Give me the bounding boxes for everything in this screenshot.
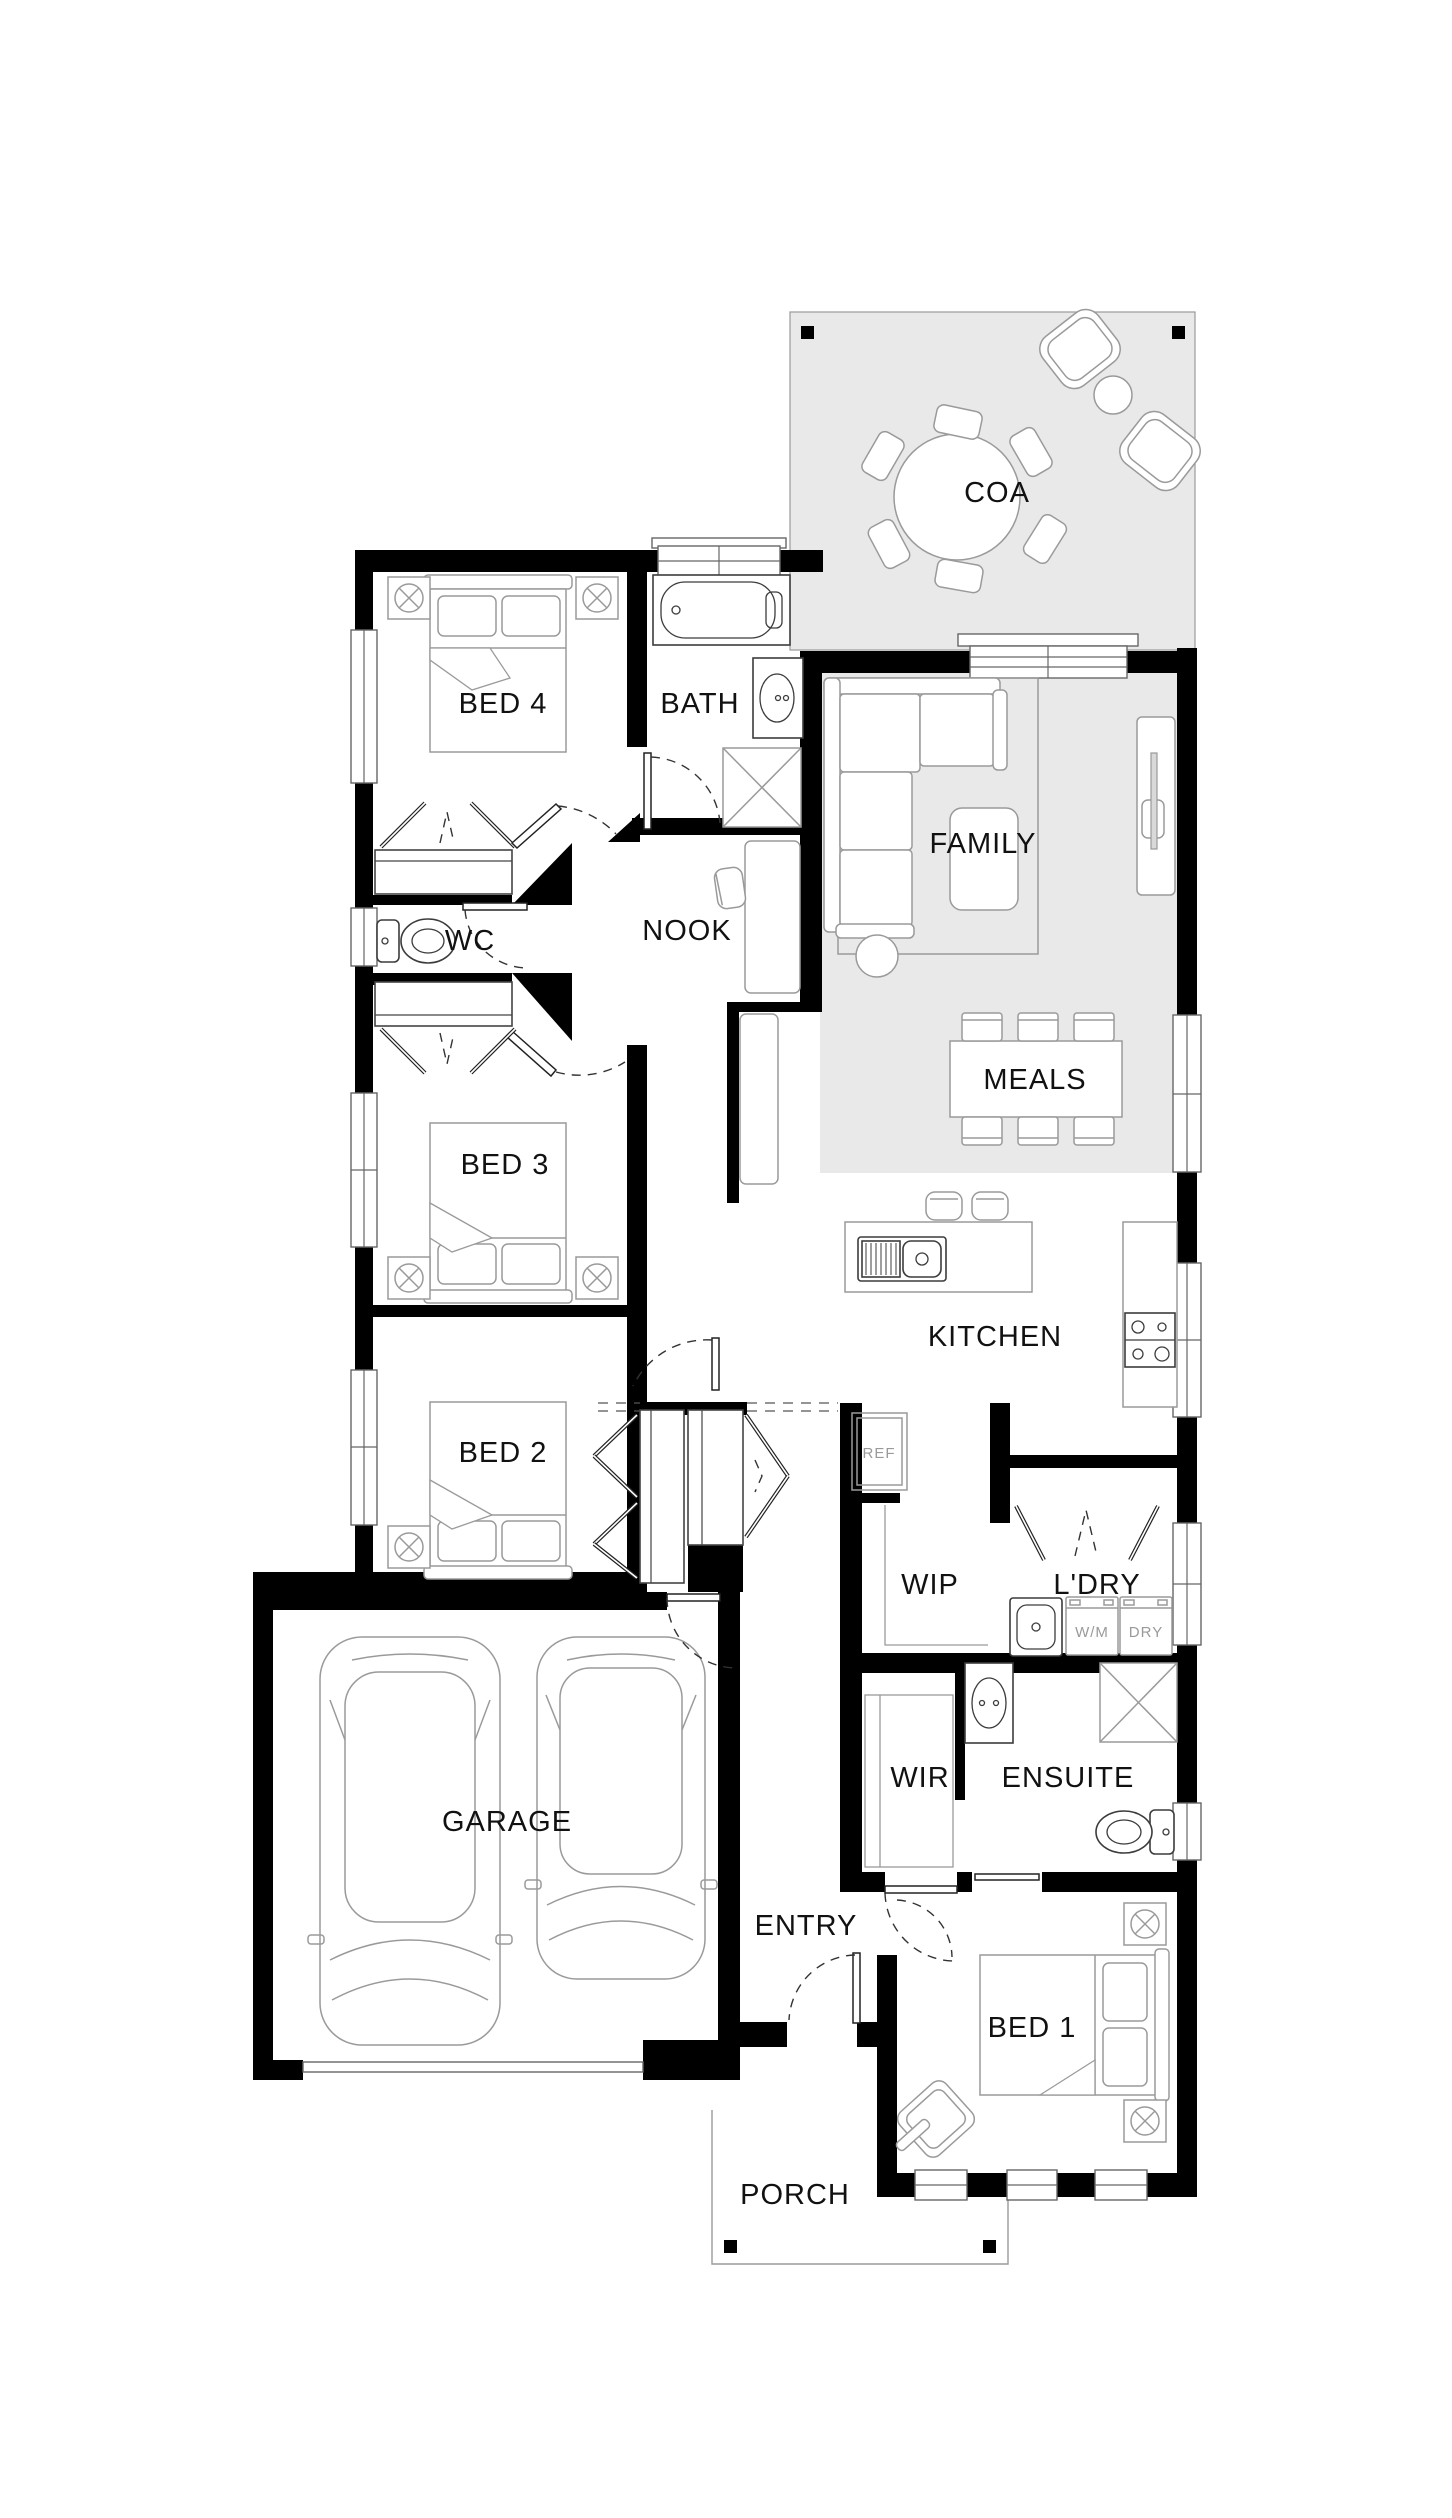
bed2-light bbox=[388, 1526, 430, 1568]
laundry-trough bbox=[1010, 1598, 1062, 1656]
bed2-furniture bbox=[388, 1402, 684, 1583]
bed2-window bbox=[351, 1370, 377, 1525]
kitchen-sink bbox=[858, 1237, 946, 1281]
ensuite-toilet bbox=[1096, 1810, 1174, 1854]
bed3-furniture bbox=[375, 982, 618, 1303]
floor-plan-page: COA BED 4 BATH FAMILY WC NOOK MEALS BED … bbox=[0, 0, 1452, 2518]
room-label-wc: WC bbox=[445, 925, 495, 957]
bath-window bbox=[652, 538, 786, 576]
meals-window bbox=[1173, 1015, 1201, 1172]
bed4-window bbox=[351, 630, 377, 783]
wc-toilet bbox=[377, 919, 455, 963]
meals-buffet bbox=[740, 1014, 778, 1184]
bed4-light bbox=[388, 577, 430, 619]
bed1-light bbox=[1124, 1903, 1166, 1945]
room-label-bed2: BED 2 bbox=[459, 1437, 548, 1469]
bed2-bed bbox=[424, 1402, 572, 1579]
bed3-light bbox=[388, 1257, 430, 1299]
linen-cupboard bbox=[688, 1410, 788, 1545]
bed4-light bbox=[576, 577, 618, 619]
family-tv-unit bbox=[1137, 717, 1175, 895]
kitchen-stools bbox=[926, 1192, 1008, 1220]
room-label-porch: PORCH bbox=[740, 2179, 850, 2211]
room-label-wip: WIP bbox=[901, 1569, 959, 1601]
ensuite-shower bbox=[1100, 1663, 1177, 1742]
laundry-window bbox=[1173, 1523, 1201, 1645]
nook-chair bbox=[713, 866, 746, 910]
bed1-light bbox=[1124, 2100, 1166, 2142]
bed3-window bbox=[351, 1093, 377, 1247]
bed1-chair bbox=[894, 2077, 979, 2162]
bed3-light bbox=[576, 1257, 618, 1299]
bed3-door bbox=[507, 1031, 625, 1076]
room-label-bed1: BED 1 bbox=[988, 2012, 1077, 2044]
ensuite-slider bbox=[975, 1874, 1039, 1880]
car-1 bbox=[308, 1637, 512, 2045]
room-label-nook: NOOK bbox=[642, 915, 731, 947]
porch-post bbox=[724, 2240, 737, 2253]
room-label-ensuite: ENSUITE bbox=[1002, 1762, 1135, 1794]
room-label-ldry: L'DRY bbox=[1053, 1569, 1140, 1601]
label-wm: W/M bbox=[1075, 1624, 1109, 1641]
bed4-furniture bbox=[375, 575, 618, 894]
room-label-bed4: BED 4 bbox=[459, 688, 548, 720]
kitchen-fixtures bbox=[845, 1192, 1177, 1407]
wir-ens-door bbox=[885, 1886, 957, 1961]
room-label-bath: BATH bbox=[660, 688, 739, 720]
bed1-door-swing bbox=[897, 1900, 952, 1957]
ensuite-vanity bbox=[965, 1663, 1013, 1743]
wc-window bbox=[351, 908, 377, 966]
laundry-bifolds bbox=[1016, 1506, 1158, 1560]
nook-desk bbox=[745, 841, 800, 993]
bath-shower bbox=[723, 748, 801, 827]
bath-door bbox=[644, 753, 720, 829]
room-label-meals: MEALS bbox=[983, 1064, 1086, 1096]
ensuite-window bbox=[1173, 1803, 1201, 1860]
room-label-kitchen: KITCHEN bbox=[928, 1321, 1062, 1353]
floor-plan-drawing: COA BED 4 BATH FAMILY WC NOOK MEALS BED … bbox=[0, 0, 1452, 2518]
bath-vanity bbox=[753, 658, 803, 738]
cooktop bbox=[1125, 1313, 1175, 1367]
porch-post bbox=[983, 2240, 996, 2253]
garage-door-panel bbox=[303, 2062, 643, 2072]
bed4-robe bbox=[375, 803, 515, 894]
outdoor-side-table bbox=[1094, 376, 1132, 414]
bathtub bbox=[653, 575, 790, 645]
room-label-bed3: BED 3 bbox=[461, 1149, 550, 1181]
room-label-entry: ENTRY bbox=[755, 1910, 858, 1942]
front-door bbox=[789, 1953, 860, 2023]
bed4-bed bbox=[424, 575, 572, 752]
bed3-robe bbox=[375, 982, 515, 1073]
stacker-door bbox=[958, 634, 1138, 678]
room-label-family: FAMILY bbox=[930, 828, 1037, 860]
label-ref: REF bbox=[863, 1445, 896, 1462]
room-label-wir: WIR bbox=[890, 1762, 949, 1794]
bed4-door bbox=[512, 804, 616, 848]
room-label-coa: COA bbox=[964, 477, 1030, 509]
label-dry: DRY bbox=[1129, 1624, 1163, 1641]
family-side-table bbox=[856, 935, 898, 977]
bed1-windows bbox=[915, 2170, 1147, 2200]
room-label-garage: GARAGE bbox=[442, 1806, 572, 1838]
